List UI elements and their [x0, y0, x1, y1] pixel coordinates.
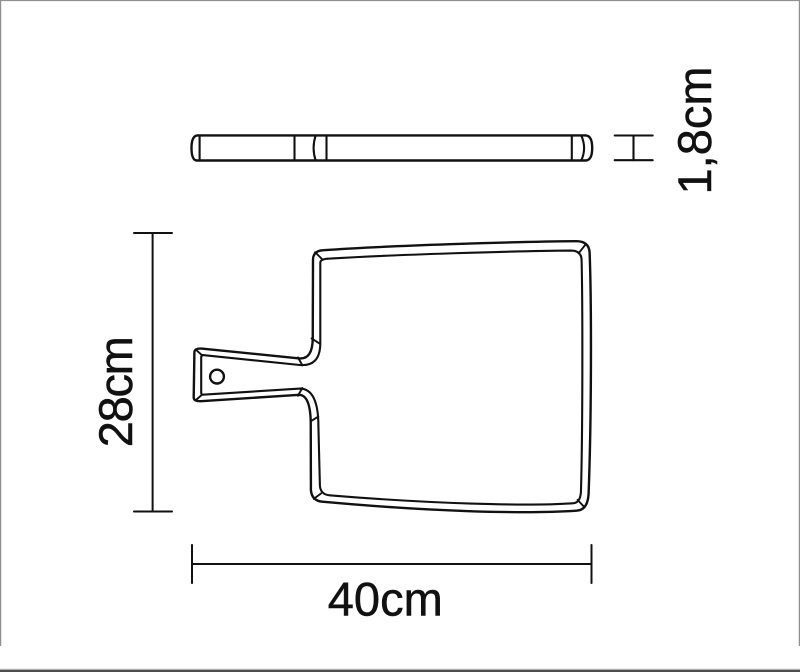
svg-text:1,8cm: 1,8cm: [668, 67, 721, 195]
svg-text:40cm: 40cm: [328, 573, 443, 626]
svg-text:28cm: 28cm: [89, 336, 142, 447]
